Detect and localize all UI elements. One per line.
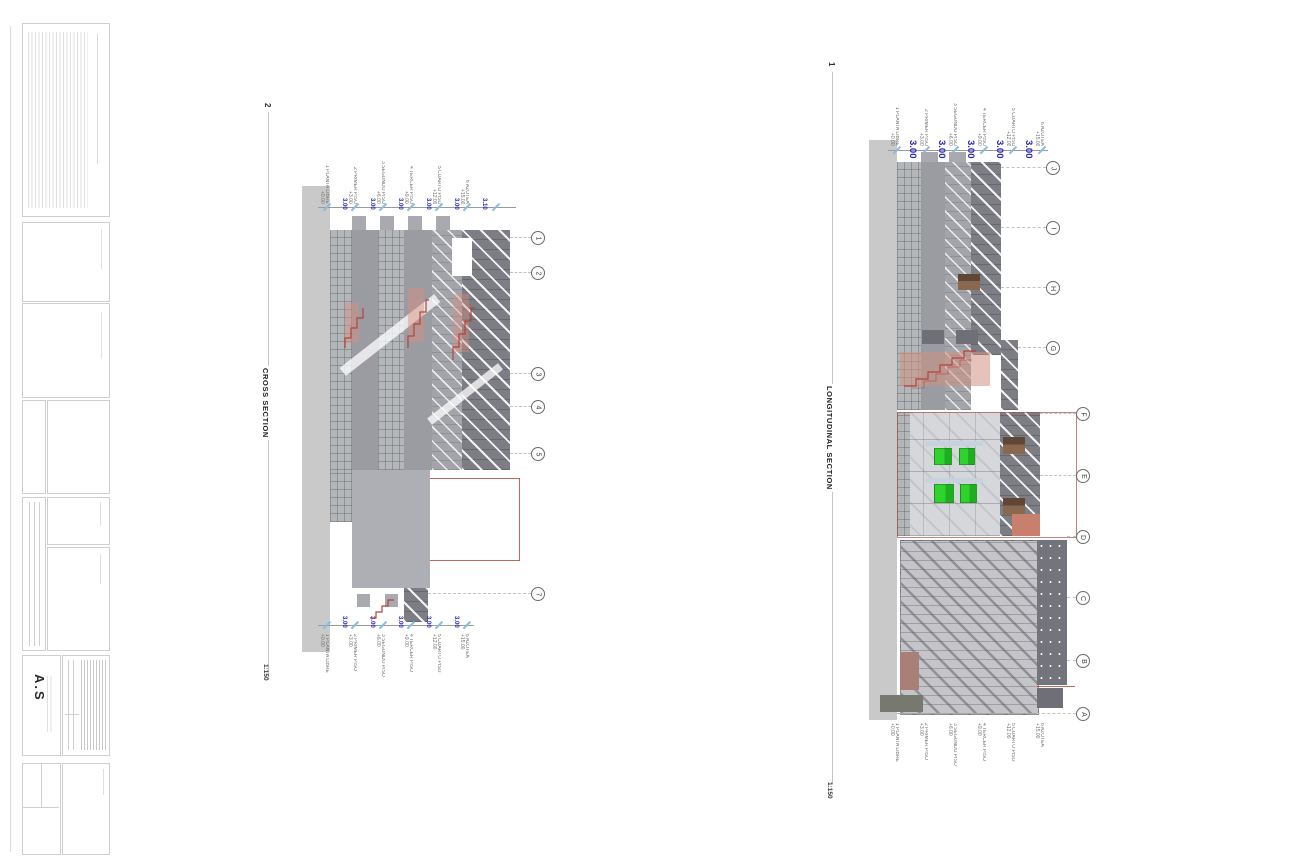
dim-value: 3.00 [335,198,347,210]
grid-bubble: E [1076,469,1090,483]
cross-section-number: 2 [263,103,272,107]
grid-bubble: 2 [531,266,545,280]
dim-value: 3.00 [335,616,347,628]
panel-caption-mark [103,769,104,795]
titleblock-logo-panel: A.S [22,655,61,756]
grid-bubble: C [1076,591,1090,605]
grid-leader [1001,227,1046,228]
level-label: 4 TERCER PISO+9.00 [975,723,986,787]
table-line [29,502,30,646]
grid-leader [1067,536,1076,537]
grid-leader [1067,660,1076,661]
level-label: 1 PLANTA LIBRE+0.00 [888,723,899,787]
grid-bubble: G [1046,341,1060,355]
grid-leader [1001,167,1046,168]
margin-panel-4a [47,497,110,545]
drawing-sheet: A.S 2 CROSS SECTION 1:150 3.00 3.00 3.00… [0,0,1300,867]
long-section-title: LONGITUDINAL SECTION [824,384,835,492]
titleblock-line [68,660,69,750]
grid-leader [510,237,531,238]
stair-profile [342,295,366,351]
grid-bubble: 4 [531,400,545,414]
grid-leader [510,453,531,454]
level-label: 6 AZOTEA+15.00 [458,156,469,204]
level-label: 3 SEGUNDO PISO+6.00 [946,94,957,146]
grid-bubble: I [1046,221,1060,235]
grid-leader [1037,713,1076,714]
notes-heading-line [97,34,98,164]
dim-value: 3.00 [447,616,459,628]
table-line [39,502,40,646]
grid-bubble: J [1046,161,1060,175]
grid-leader [510,373,531,374]
grid-bubble: 5 [531,447,545,461]
parapet-stub [352,216,366,230]
level-label: 3 SEGUNDO PISO+6.00 [946,723,957,787]
section-cut-redline [1037,686,1075,687]
long-ground-band [869,140,897,720]
level-label: 5 CUARTO PISO+12.00 [1004,94,1015,146]
parapet-stub [408,216,422,230]
beam-block [922,330,944,344]
long-section-scale: 1:150 [826,782,833,799]
grid-leader [1018,347,1046,348]
stair-profile [448,282,476,364]
logo-caption-microtext [47,676,52,732]
notes-panel [22,23,110,217]
dim-value: 3.00 [363,198,375,210]
dim-value: 3.00 [963,140,976,159]
grid-leader [428,593,531,594]
base-block [1037,688,1063,708]
grid-leader [1067,597,1076,598]
level-label: 4 TERCER PISO+9.00 [402,634,413,694]
section-cut-redline [430,478,520,479]
stair-profile [404,278,430,352]
margin-panel-5a [22,763,61,855]
notes-microtext [28,32,88,208]
panel-caption-mark [100,502,101,526]
panel-caption-mark [100,554,101,584]
long-lower-hatch-mass [900,540,1039,715]
dim-value: 3.10 [475,198,487,210]
level-label: 3 SEGUNDO PISO+6.00 [374,156,385,204]
void-notch [452,238,472,276]
level-label: 1 PLANTA LIBRE+0.00 [318,156,329,204]
stair-profile [902,346,1002,390]
grid-leader [1001,287,1046,288]
level-label: 5 CUARTO PISO+12.00 [1004,723,1015,787]
grid-bubble: B [1076,654,1090,668]
grid-bubble: 7 [531,587,545,601]
level-label: 2 PRIMER PISO+3.00 [346,156,357,204]
long-wall-hatch [1001,340,1018,410]
section-cut-redline [519,478,520,561]
margin-panel-1 [22,222,110,302]
panel-caption-mark [101,312,102,358]
door-block [958,274,980,290]
grid-bubble: D [1076,530,1090,544]
level-label: 4 TERCER PISO+9.00 [402,156,413,204]
margin-panel-3a [22,400,46,494]
level-label: 6 AZOTEA+15.00 [1033,94,1044,146]
base-block [880,695,923,712]
titleblock-line [65,714,79,715]
parapet-stub [436,216,450,230]
titleblock-microtext [81,660,106,750]
cross-curtainwall-strip [378,230,404,470]
grid-bubble: 3 [531,367,545,381]
base-line [897,713,1037,714]
grid-leader [1040,475,1076,476]
level-label: 5 CUARTO PISO+12.00 [430,634,441,694]
titleblock-info-panel [62,655,110,756]
panel-divider [23,807,59,808]
level-label: 4 TERCER PISO+9.00 [975,94,986,146]
panel-caption-mark [101,229,102,269]
cross-lower-grid [330,470,352,522]
dim-value: 3.00 [419,616,431,628]
level-label: 5 CUARTO PISO+12.00 [430,156,441,204]
level-label: 3 SEGUNDO PISO+6.00 [374,634,385,694]
dim-value: 3.00 [391,198,403,210]
cross-ground-band [302,186,330,652]
grid-leader [510,406,531,407]
grid-leader [1040,413,1076,414]
margin-panel-4b [47,547,110,651]
panel-divider [41,764,42,807]
cross-lower-hatch [352,470,430,588]
dim-value: 3.00 [1021,140,1034,159]
level-label: 2 PRIMER PISO+3.00 [917,723,928,787]
level-label: 1 PLANTA LIBRE+0.00 [888,94,899,146]
beam-block [956,330,978,344]
long-wall-hatch [971,162,1001,355]
dim-value: 3.00 [447,198,459,210]
margin-panel-3b [47,400,110,494]
margin-panel-2 [22,303,110,398]
level-label: 6 AZOTEA+15.00 [458,634,469,694]
parapet-stub [380,216,394,230]
dim-value: 3.00 [934,140,947,159]
level-label: 2 PRIMER PISO+3.00 [346,634,357,694]
masonry-block [900,652,919,690]
grid-bubble: H [1046,281,1060,295]
cross-section-scale: 1:150 [262,664,269,681]
level-label: 6 AZOTEA+15.00 [1033,723,1044,787]
dim-value: 3.00 [419,198,431,210]
dim-value: 3.00 [905,140,918,159]
cross-section-title: CROSS SECTION [260,366,271,440]
margin-panel-5b [62,763,110,855]
level-label: 1 PLANTA LIBRE+0.00 [318,634,329,694]
titleblock-line [73,660,74,750]
grid-leader [510,272,531,273]
grid-bubble: F [1076,407,1090,421]
long-section-number: 1 [827,62,836,66]
dim-value: 3.00 [992,140,1005,159]
long-speckle-band [1037,540,1067,685]
level-label: 2 PRIMER PISO+3.00 [917,94,928,146]
stair-profile [368,592,396,620]
margin-table-panel [22,497,46,651]
grid-bubble: A [1076,707,1090,721]
firm-logo: A.S [32,674,47,702]
table-line [34,502,35,646]
grid-bubble: 1 [531,231,545,245]
sheet-edge-line [10,26,11,852]
section-cut-redline [430,560,520,561]
